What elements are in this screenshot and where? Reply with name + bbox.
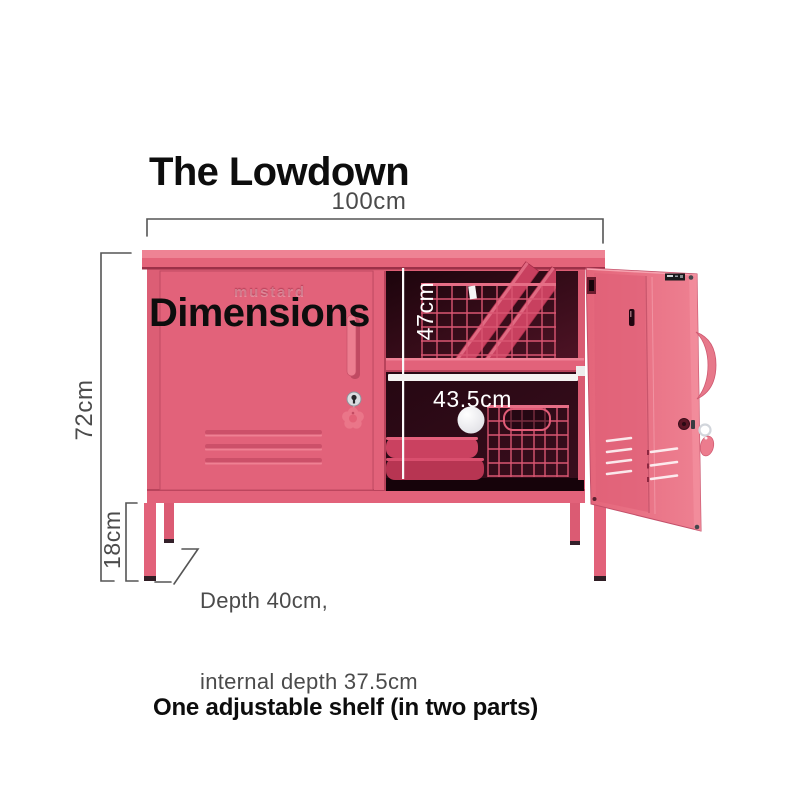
page-title: The Lowdown Dimensions <box>149 55 409 431</box>
depth-pointer-line <box>155 549 198 584</box>
depth-note-line1: Depth 40cm, <box>200 587 418 614</box>
leg-height-dimension-label: 18cm <box>99 511 125 569</box>
key-icon <box>699 425 716 458</box>
left-door-vent-slats <box>205 430 322 465</box>
height-dimension-label: 72cm <box>71 379 97 441</box>
width-dimension-label: 100cm <box>309 188 429 216</box>
internal-width-label: 43.5cm <box>415 386 530 413</box>
door-lock-back <box>679 419 696 430</box>
door-label-sticker <box>665 274 685 281</box>
shelf-note: One adjustable shelf (in two parts) <box>153 694 538 722</box>
depth-note-line2: internal depth 37.5cm <box>200 668 418 695</box>
internal-width-line <box>388 374 578 381</box>
internal-height-label: 47cm <box>412 276 436 346</box>
leg-height-dimension-line <box>126 503 138 581</box>
product-dimensions-page: The Lowdown Dimensions 100cm 72cm 18cm 4… <box>0 0 798 798</box>
open-right-door <box>586 268 716 531</box>
folded-blankets <box>386 437 484 480</box>
brand-logo: mustard <box>234 284 294 301</box>
